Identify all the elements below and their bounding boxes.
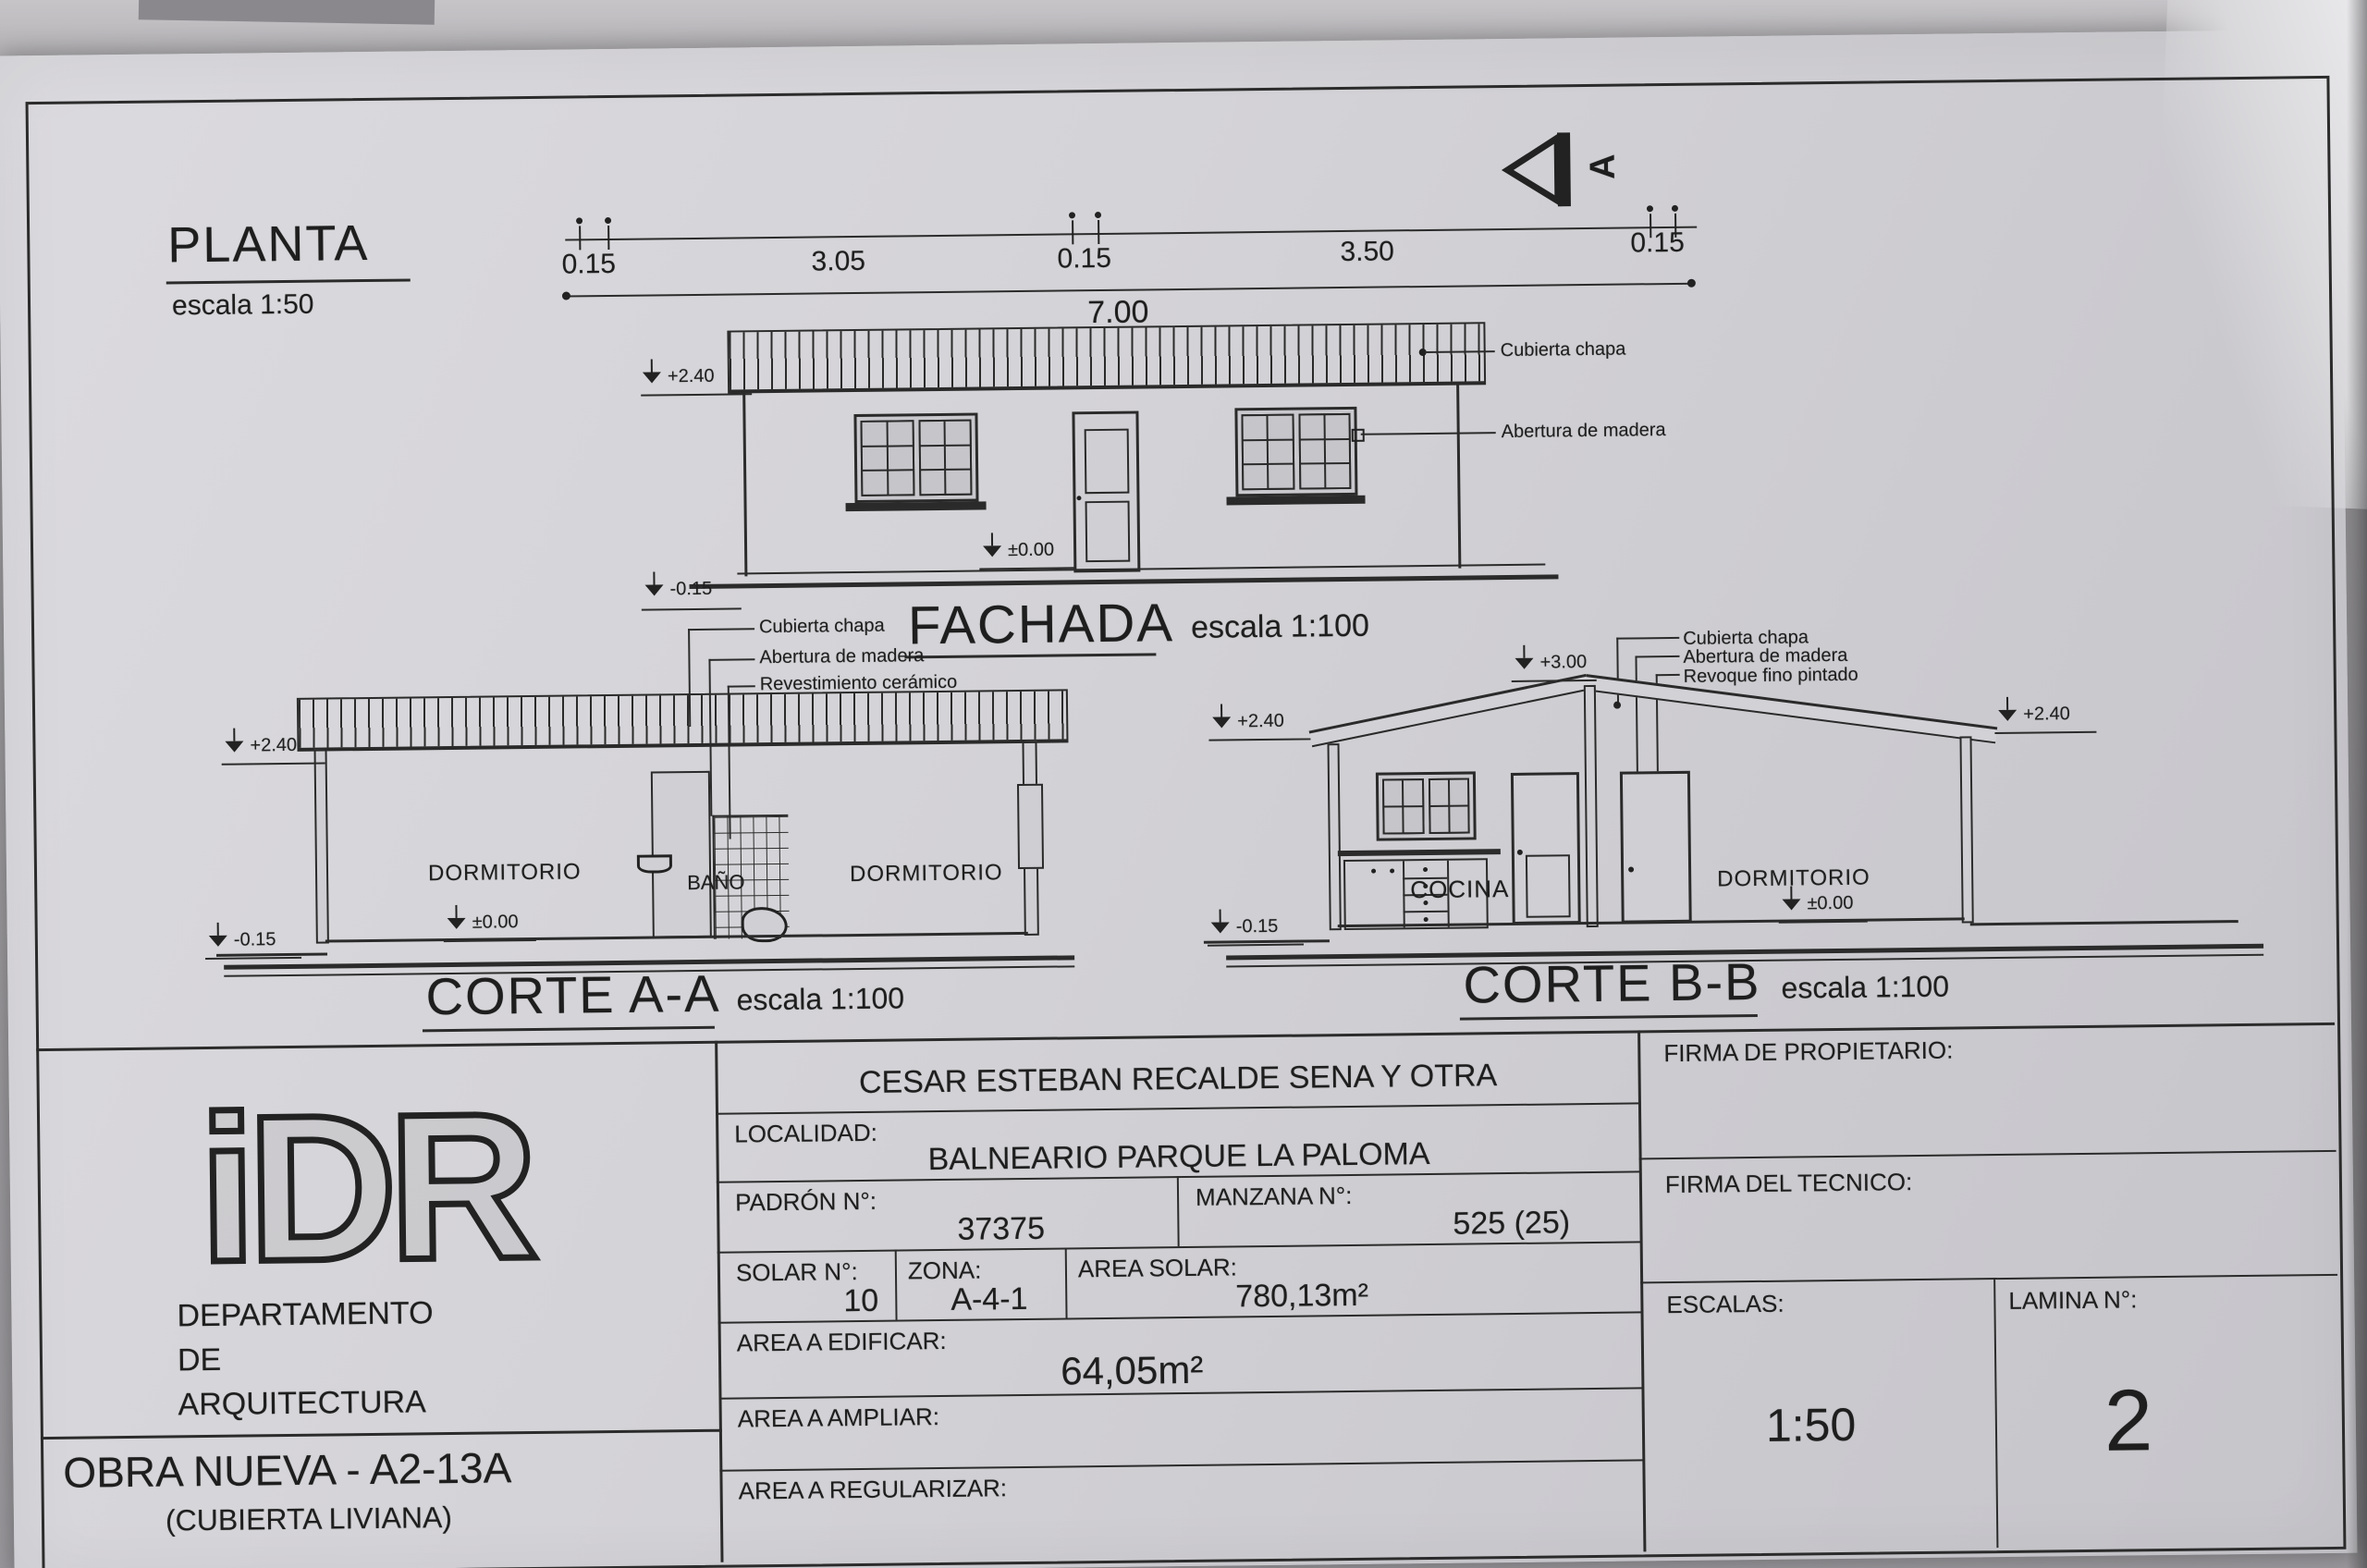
door-handle bbox=[1628, 866, 1634, 872]
work-type: OBRA NUEVA - A2-13A bbox=[63, 1442, 512, 1497]
corte-b-wall-right bbox=[1959, 736, 1973, 923]
fachada-window-left bbox=[853, 412, 978, 503]
corte-a-wall-left bbox=[314, 750, 329, 944]
corte-b-dormitorio-door bbox=[1620, 771, 1692, 924]
escalas-label: ESCALAS: bbox=[1666, 1290, 1784, 1319]
corte-b-room-cocina: COCINA bbox=[1410, 875, 1509, 904]
door-panel-upper bbox=[1085, 429, 1130, 495]
dim-tick bbox=[1098, 220, 1099, 244]
fachada-roof bbox=[727, 322, 1486, 393]
manzana-label: MANZANA N°: bbox=[1196, 1182, 1353, 1212]
dim-label: 0.15 bbox=[1630, 227, 1685, 260]
corte-a-room-dormitorio-1: DORMITORIO bbox=[428, 859, 582, 887]
dim-tick-dot bbox=[1672, 205, 1678, 212]
fachada-window-right bbox=[1234, 407, 1357, 496]
work-subtype: (CUBIERTA LIVIANA) bbox=[166, 1501, 452, 1538]
firma-propietario-label: FIRMA DE PROPIETARIO: bbox=[1663, 1036, 1953, 1069]
door-panel-lower bbox=[1085, 501, 1131, 563]
dim-tick-dot bbox=[576, 217, 583, 224]
manzana-value: 525 (25) bbox=[1453, 1205, 1570, 1242]
knob bbox=[1424, 917, 1429, 922]
window-leaf bbox=[1382, 778, 1424, 835]
padron-value: 37375 bbox=[957, 1211, 1045, 1248]
leader-line bbox=[728, 685, 755, 687]
door-handle bbox=[1076, 496, 1081, 500]
fachada-window-right-sill bbox=[1226, 496, 1365, 506]
fachada-door bbox=[1072, 411, 1140, 573]
corte-a-room-banio: BAÑO bbox=[687, 870, 745, 895]
door-handle bbox=[1517, 850, 1523, 855]
fachada-roof-label: Cubierta chapa bbox=[1501, 339, 1626, 362]
knob bbox=[1423, 867, 1428, 872]
area-edificar-value: 64,05m² bbox=[1061, 1348, 1204, 1394]
dim-tick-dot bbox=[1069, 212, 1075, 218]
area-solar-value: 780,13m² bbox=[1235, 1278, 1368, 1316]
org-dept-line2: DE bbox=[178, 1342, 222, 1379]
corte-b-cocina-door bbox=[1511, 772, 1581, 925]
photographed-plan-sheet: PLANTA escala 1:50 0.15 3.05 0.15 3.50 0… bbox=[0, 0, 2367, 1568]
corte-a-room-dormitorio-2: DORMITORIO bbox=[850, 860, 1003, 888]
corte-a-roof bbox=[297, 689, 1069, 751]
area-regularizar-label: AREA A REGULARIZAR: bbox=[738, 1474, 1007, 1505]
fachada-window-left-sill bbox=[846, 501, 987, 511]
drawer-line bbox=[1404, 911, 1448, 913]
dim-tick-dot bbox=[1095, 212, 1101, 218]
dim-label: 0.15 bbox=[561, 249, 616, 281]
window-leaf bbox=[861, 420, 914, 496]
border-frame bbox=[26, 76, 2347, 1568]
dim-tick bbox=[1072, 220, 1073, 244]
leader-square bbox=[1352, 429, 1365, 442]
corte-b-legend-plaster: Revoque fino pintado bbox=[1684, 665, 1858, 688]
org-dept-line3: ARQUITECTURA bbox=[178, 1384, 426, 1423]
photo-edge-shadow bbox=[2347, 0, 2367, 1568]
dim-label: 3.05 bbox=[811, 246, 865, 278]
leader-line bbox=[1656, 674, 1680, 676]
window-leaf bbox=[1298, 413, 1351, 490]
fachada-scale: escala 1:100 bbox=[1191, 608, 1369, 646]
firma-tecnico-label: FIRMA DEL TECNICO: bbox=[1665, 1168, 1913, 1199]
knob bbox=[1390, 868, 1394, 873]
escalas-value: 1:50 bbox=[1766, 1398, 1857, 1452]
idr-logo: iDR bbox=[198, 1082, 531, 1293]
corte-b-cocina-window bbox=[1376, 771, 1477, 840]
corte-b-title: CORTE B-B bbox=[1463, 951, 1761, 1015]
solar-value: 10 bbox=[843, 1283, 878, 1319]
window-leaf bbox=[1241, 414, 1294, 491]
planta-title: PLANTA bbox=[167, 214, 370, 274]
fachada-title: FACHADA bbox=[908, 592, 1175, 656]
solar-label: SOLAR N°: bbox=[736, 1257, 858, 1287]
corte-a-scale: escala 1:100 bbox=[736, 981, 904, 1017]
zona-label: ZONA: bbox=[908, 1256, 982, 1286]
door-panel-lower bbox=[1526, 854, 1571, 918]
corte-a-legend-roof: Cubierta chapa bbox=[759, 616, 885, 639]
fachada-opening-label: Abertura de madera bbox=[1502, 420, 1666, 443]
dim-tick-dot bbox=[1647, 205, 1653, 212]
dim-label: 0.15 bbox=[1057, 243, 1111, 276]
area-edificar-label: AREA A EDIFICAR: bbox=[737, 1327, 947, 1358]
corte-b-room-dormitorio: DORMITORIO bbox=[1717, 865, 1870, 893]
section-cut-marker bbox=[1500, 132, 1589, 207]
leader-dot bbox=[1613, 702, 1621, 709]
dim-tick bbox=[579, 226, 581, 250]
window-leaf bbox=[1428, 778, 1469, 834]
window-leaf bbox=[918, 420, 972, 496]
corte-b-wall-left bbox=[1328, 743, 1342, 930]
dim-tick bbox=[607, 226, 609, 250]
corte-a-legend-opening: Abertura de madera bbox=[759, 645, 924, 668]
dim-label: 3.50 bbox=[1340, 236, 1394, 268]
area-solar-label: AREA SOLAR: bbox=[1078, 1253, 1237, 1283]
planta-scale: escala 1:50 bbox=[172, 289, 314, 323]
corte-a-right-window bbox=[1017, 784, 1044, 869]
dim-tick-dot bbox=[605, 217, 611, 224]
lamina-label: LAMINA N°: bbox=[2008, 1285, 2137, 1316]
dim-end-dot bbox=[562, 291, 570, 300]
sheet-content: PLANTA escala 1:50 0.15 3.05 0.15 3.50 0… bbox=[0, 0, 2367, 1568]
corte-a-title: CORTE A-A bbox=[425, 963, 721, 1027]
zona-value: A-4-1 bbox=[950, 1281, 1028, 1318]
dim-end-dot bbox=[1687, 279, 1696, 288]
corte-b-scale: escala 1:100 bbox=[1781, 970, 1949, 1006]
area-ampliar-label: AREA A AMPLIAR: bbox=[738, 1403, 940, 1433]
padron-label: PADRÓN N°: bbox=[735, 1187, 877, 1218]
lamina-value: 2 bbox=[2103, 1370, 2153, 1471]
org-dept-line1: DEPARTAMENTO bbox=[177, 1295, 434, 1334]
sink bbox=[637, 854, 672, 873]
section-marker-letter: A bbox=[1584, 153, 1624, 179]
knob bbox=[1371, 869, 1376, 874]
